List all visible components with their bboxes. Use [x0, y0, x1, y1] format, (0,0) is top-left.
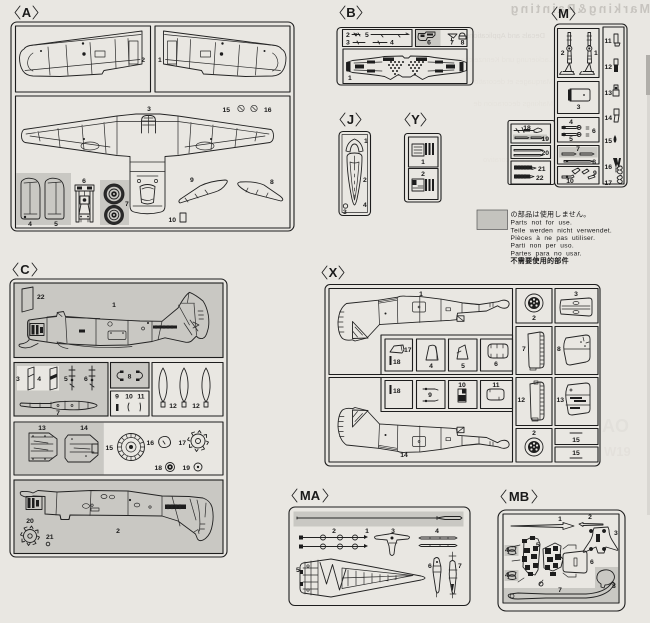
svg-text:17: 17: [605, 180, 613, 187]
svg-text:13: 13: [557, 397, 565, 404]
svg-text:9: 9: [115, 394, 119, 401]
svg-text:1: 1: [594, 50, 598, 57]
svg-text:15: 15: [222, 107, 230, 114]
svg-text:6: 6: [84, 376, 88, 383]
svg-text:5: 5: [461, 363, 465, 370]
svg-text:11: 11: [137, 394, 144, 401]
svg-text:4: 4: [505, 547, 509, 554]
svg-text:10: 10: [168, 217, 176, 224]
svg-text:12: 12: [169, 403, 177, 410]
svg-text:B: B: [346, 5, 355, 20]
svg-text:5: 5: [296, 567, 300, 574]
svg-text:4: 4: [435, 528, 439, 535]
svg-text:Marking&Painting: Marking&Painting: [509, 2, 650, 16]
svg-text:3: 3: [346, 40, 350, 47]
svg-text:2: 2: [421, 171, 425, 178]
svg-text:9: 9: [428, 392, 432, 399]
svg-text:Decals and Applications: Decals and Applications: [465, 31, 545, 40]
svg-text:8: 8: [461, 40, 465, 47]
svg-text:18: 18: [393, 359, 401, 366]
svg-text:6: 6: [590, 559, 594, 566]
svg-text:4: 4: [37, 376, 41, 383]
svg-text:3: 3: [147, 106, 151, 113]
svg-text:7: 7: [56, 410, 60, 417]
svg-text:5: 5: [365, 32, 369, 39]
svg-text:Markings decoracion de: Markings decoracion de: [473, 99, 553, 108]
svg-text:5: 5: [54, 221, 58, 228]
svg-text:Lackierung und Kennzeichen: Lackierung und Kennzeichen: [456, 55, 553, 64]
svg-text:14: 14: [80, 425, 88, 432]
svg-text:2: 2: [532, 430, 536, 437]
svg-text:2: 2: [363, 177, 367, 184]
svg-text:W19: W19: [604, 444, 631, 459]
svg-text:Marquages et decoration: Marquages et decoration: [470, 77, 553, 86]
svg-text:15: 15: [105, 445, 113, 452]
svg-text:7: 7: [125, 201, 129, 208]
svg-text:1: 1: [558, 516, 562, 523]
svg-text:不需要使用的部件: 不需要使用的部件: [511, 256, 569, 265]
svg-text:4: 4: [429, 363, 433, 370]
svg-text:1: 1: [365, 528, 369, 535]
svg-text:7: 7: [522, 346, 526, 353]
svg-text:20: 20: [26, 518, 34, 525]
svg-text:17: 17: [178, 440, 186, 447]
svg-text:Y: Y: [411, 112, 420, 127]
svg-text:6: 6: [427, 40, 431, 47]
svg-text:11: 11: [492, 382, 499, 389]
svg-text:3: 3: [16, 376, 20, 383]
svg-text:7: 7: [458, 563, 462, 570]
svg-text:11: 11: [605, 38, 612, 45]
svg-text:17: 17: [404, 347, 412, 354]
svg-text:15: 15: [572, 437, 580, 444]
svg-text:16: 16: [146, 440, 154, 447]
svg-text:19: 19: [182, 465, 190, 472]
svg-text:1: 1: [364, 138, 368, 145]
svg-text:1: 1: [158, 57, 162, 64]
svg-text:10: 10: [458, 382, 466, 389]
svg-text:4: 4: [569, 119, 573, 126]
svg-text:16: 16: [264, 107, 272, 114]
svg-text:MA: MA: [300, 488, 321, 503]
svg-text:21: 21: [538, 166, 546, 173]
svg-text:6: 6: [82, 178, 86, 185]
svg-text:8: 8: [612, 583, 616, 590]
svg-text:1: 1: [112, 302, 116, 309]
svg-text:8: 8: [592, 159, 596, 166]
svg-text:7: 7: [576, 146, 580, 153]
svg-text:13: 13: [605, 90, 613, 97]
svg-text:Partes para no usar.: Partes para no usar.: [511, 250, 582, 257]
svg-text:2: 2: [346, 32, 350, 39]
svg-text:19: 19: [541, 136, 549, 143]
svg-text:2: 2: [561, 50, 565, 57]
svg-text:AO: AO: [602, 416, 629, 436]
svg-text:2: 2: [332, 528, 336, 535]
svg-text:2: 2: [141, 57, 145, 64]
svg-text:MB: MB: [509, 489, 529, 504]
svg-text:4: 4: [390, 40, 394, 47]
svg-text:J: J: [347, 112, 354, 127]
svg-text:3: 3: [343, 209, 347, 216]
svg-text:6: 6: [428, 563, 432, 570]
svg-text:18: 18: [154, 465, 162, 472]
svg-text:2: 2: [532, 315, 536, 322]
svg-text:10: 10: [566, 178, 574, 185]
svg-text:8: 8: [128, 374, 132, 381]
svg-text:X: X: [329, 265, 338, 280]
svg-text:Pièces à ne pas utiliser.: Pièces à ne pas utiliser.: [511, 235, 596, 242]
svg-text:12: 12: [192, 403, 200, 410]
svg-text:8: 8: [557, 346, 561, 353]
svg-text:14: 14: [605, 115, 613, 122]
svg-text:12: 12: [605, 64, 613, 71]
svg-text:7: 7: [558, 587, 562, 594]
svg-text:16: 16: [605, 164, 613, 171]
svg-text:15: 15: [572, 450, 580, 457]
svg-text:1: 1: [348, 75, 352, 82]
svg-text:2: 2: [588, 514, 592, 521]
svg-text:12: 12: [518, 397, 526, 404]
svg-text:20: 20: [541, 150, 549, 157]
svg-text:15: 15: [605, 138, 613, 145]
svg-text:M: M: [558, 6, 569, 21]
svg-text:3: 3: [574, 291, 578, 298]
svg-text:4: 4: [363, 202, 367, 209]
svg-text:Parts not for use.: Parts not for use.: [511, 220, 573, 227]
svg-text:6: 6: [592, 128, 596, 135]
svg-text:18: 18: [393, 388, 401, 395]
svg-text:8: 8: [270, 179, 274, 186]
svg-text:Parti non per uso.: Parti non per uso.: [511, 243, 574, 250]
svg-text:Teile werden nicht verwendet.: Teile werden nicht verwendet.: [511, 227, 613, 234]
svg-text:5: 5: [569, 136, 573, 143]
svg-text:9: 9: [593, 170, 597, 177]
svg-text:4: 4: [28, 221, 32, 228]
svg-text:22: 22: [536, 175, 544, 182]
svg-text:3: 3: [577, 104, 581, 111]
svg-text:A: A: [22, 5, 32, 20]
svg-text:13: 13: [38, 425, 46, 432]
svg-text:2: 2: [116, 528, 120, 535]
svg-text:7: 7: [450, 40, 454, 47]
svg-text:14: 14: [400, 452, 408, 459]
svg-text:9: 9: [190, 177, 194, 184]
svg-text:6: 6: [494, 361, 498, 368]
svg-text:1: 1: [421, 159, 425, 166]
svg-text:21: 21: [46, 534, 54, 541]
svg-text:C: C: [20, 262, 30, 277]
svg-text:4: 4: [505, 572, 509, 579]
svg-text:22: 22: [37, 294, 45, 301]
svg-text:10: 10: [125, 394, 133, 401]
svg-text:の部品は使用しません。: の部品は使用しません。: [511, 210, 591, 219]
svg-text:5: 5: [64, 376, 68, 383]
svg-text:3: 3: [614, 530, 618, 537]
